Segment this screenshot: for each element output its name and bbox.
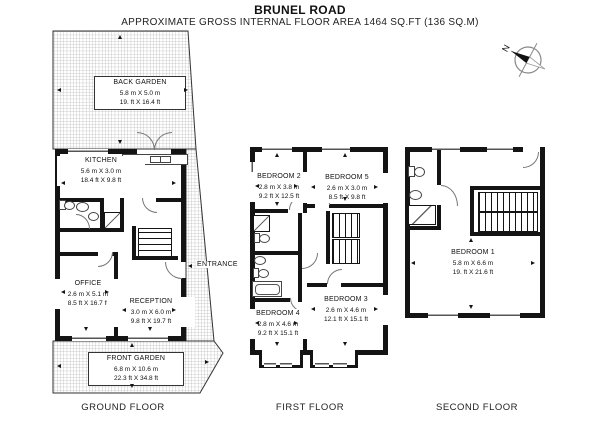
- measure-arrow-left-icon: [411, 261, 415, 265]
- room-name: BEDROOM 3: [303, 295, 389, 306]
- room-dims-imperial: 8.5 ft X 9.8 ft: [304, 193, 390, 203]
- measure-arrow-left-icon: [311, 185, 315, 189]
- room-name: BEDROOM 5: [304, 173, 390, 184]
- wall: [437, 150, 441, 185]
- wall: [460, 147, 487, 152]
- toilet-icon: [64, 201, 75, 210]
- compass-rose-icon: N: [500, 30, 554, 86]
- room-dims-imperial: 19. ft X 21.6 ft: [430, 268, 516, 278]
- stairs: [138, 228, 172, 258]
- compass: N: [500, 30, 556, 86]
- wall: [252, 251, 298, 255]
- compass-north-label: N: [500, 43, 512, 53]
- room-dims-imperial: 19. ft X 16.4 ft: [98, 98, 182, 108]
- sink-icon: [160, 156, 171, 163]
- measure-arrow-up-icon: [275, 153, 279, 157]
- measure-arrow-down-icon: [469, 305, 473, 309]
- measure-arrow-down-icon: [343, 342, 347, 346]
- measure-arrow-left-icon: [57, 88, 61, 92]
- toilet-icon: [259, 234, 270, 243]
- sink-icon: [254, 256, 266, 265]
- wall: [341, 283, 383, 287]
- room-name: OFFICE: [45, 279, 131, 290]
- measure-arrow-down-icon: [84, 327, 88, 331]
- wall: [181, 149, 186, 262]
- window: [72, 336, 106, 341]
- measure-arrow-left-icon: [61, 181, 65, 185]
- wall: [474, 232, 540, 236]
- room-dims-imperial: 9.2 ft X 15.1 ft: [235, 329, 321, 339]
- sink-icon: [76, 202, 89, 212]
- wall: [329, 204, 383, 208]
- toilet-icon: [258, 269, 269, 278]
- measure-arrow-left-icon: [311, 307, 315, 311]
- measure-arrow-down-icon: [118, 140, 122, 144]
- stairs: [478, 192, 538, 212]
- front-garden-label: FRONT GARDEN 6.8 m X 10.6 m 22.3 ft X 34…: [88, 352, 184, 386]
- room-dims-metric: 5.8 m X 5.0 m: [98, 89, 182, 99]
- measure-arrow-right-icon: [374, 307, 378, 311]
- wall: [470, 186, 474, 236]
- sink-icon: [88, 212, 99, 221]
- measure-arrow-right-icon: [294, 321, 298, 325]
- window: [315, 361, 329, 367]
- back-garden-label: BACK GARDEN 5.8 m X 5.0 m 19. ft X 16.4 …: [94, 76, 186, 110]
- wall: [168, 336, 186, 341]
- room-dims-imperial: 12.1 ft X 15.1 ft: [303, 315, 389, 325]
- wall: [540, 147, 545, 318]
- wall: [58, 252, 98, 256]
- measure-arrow-down-icon: [343, 197, 347, 201]
- wall: [250, 147, 255, 162]
- wall: [408, 226, 441, 230]
- window: [68, 149, 108, 154]
- stairs: [478, 212, 538, 232]
- wall: [55, 336, 72, 341]
- room-dims-imperial: 18.4 ft X 9.8 ft: [58, 176, 144, 186]
- bedroom-1-label: BEDROOM 1 5.8 m X 6.6 m 19. ft X 21.6 ft: [429, 248, 517, 278]
- shower-icon: [104, 212, 121, 229]
- measure-arrow-down-icon: [275, 202, 279, 206]
- measure-arrow-right-icon: [531, 261, 535, 265]
- wall: [132, 226, 136, 260]
- measure-arrow-right-icon: [184, 88, 188, 92]
- room-name: RECEPTION: [108, 297, 194, 308]
- wall: [106, 336, 128, 341]
- wall: [307, 283, 327, 287]
- ground-floor-caption: GROUND FLOOR: [81, 402, 165, 413]
- reception-label: RECEPTION 3.0 m X 6.0 m 9.8 ft X 19.7 ft: [107, 297, 195, 327]
- measure-arrow-left-icon: [122, 308, 126, 312]
- window: [262, 147, 292, 152]
- kitchen-label: KITCHEN 5.6 m X 3.0 m 18.4 ft X 9.8 ft: [57, 156, 145, 186]
- wall: [474, 186, 540, 190]
- window: [264, 361, 276, 367]
- floorplan-page: BRUNEL ROAD APPROXIMATE GROSS INTERNAL F…: [0, 0, 600, 423]
- measure-arrow-left-icon: [255, 184, 259, 188]
- room-dims-imperial: 9.8 ft X 19.7 ft: [108, 317, 194, 327]
- stairs: [332, 213, 360, 238]
- stairs: [332, 239, 360, 264]
- window: [487, 147, 513, 152]
- wall: [513, 147, 523, 152]
- wall: [307, 204, 315, 208]
- measure-arrow-down-icon: [148, 327, 152, 331]
- wall: [252, 209, 288, 213]
- bathtub-inner: [255, 284, 280, 295]
- measure-arrow-right-icon: [205, 360, 209, 364]
- room-dims-metric: 3.0 m X 6.0 m: [108, 308, 194, 318]
- shower-icon: [253, 215, 270, 232]
- room-dims-imperial: 22.3 ft X 34.8 ft: [92, 374, 180, 384]
- room-dims-metric: 5.6 m X 3.0 m: [58, 167, 144, 177]
- room-dims-metric: 5.8 m X 6.6 m: [430, 259, 516, 269]
- window: [333, 361, 347, 367]
- room-name: BACK GARDEN: [98, 78, 182, 89]
- measure-arrow-up-icon: [469, 238, 473, 242]
- wall: [458, 313, 490, 318]
- window: [428, 313, 458, 318]
- window: [322, 147, 350, 152]
- bathtub-icon: [252, 281, 282, 297]
- wall: [520, 313, 545, 318]
- room-name: KITCHEN: [58, 156, 144, 167]
- window: [490, 313, 520, 318]
- measure-arrow-up-icon: [130, 343, 134, 347]
- measure-arrow-left-icon: [57, 364, 61, 368]
- wall: [292, 147, 322, 152]
- measure-arrow-down-icon: [130, 384, 134, 388]
- measure-arrow-left-icon: [61, 290, 65, 294]
- measure-arrow-up-icon: [118, 35, 122, 39]
- measure-arrow-left-icon: [188, 264, 192, 268]
- measure-arrow-right-icon: [172, 308, 176, 312]
- room-name: BEDROOM 1: [430, 248, 516, 259]
- shower-icon: [408, 205, 436, 225]
- measure-arrow-left-icon: [255, 321, 259, 325]
- wall: [252, 298, 290, 302]
- measure-arrow-right-icon: [172, 181, 176, 185]
- window: [128, 336, 168, 341]
- entrance-label: ENTRANCE: [196, 261, 239, 268]
- wall: [405, 313, 428, 318]
- measure-arrow-right-icon: [294, 184, 298, 188]
- toilet-icon: [414, 167, 425, 177]
- first-floor-caption: FIRST FLOOR: [276, 402, 344, 413]
- wall: [326, 211, 330, 264]
- sink-icon: [409, 190, 422, 200]
- measure-arrow-right-icon: [374, 185, 378, 189]
- measure-arrow-right-icon: [105, 290, 109, 294]
- room-name: FRONT GARDEN: [92, 354, 180, 365]
- window: [280, 361, 292, 367]
- measure-arrow-up-icon: [343, 153, 347, 157]
- second-floor-caption: SECOND FLOOR: [436, 402, 518, 413]
- measure-arrow-down-icon: [275, 342, 279, 346]
- wall: [156, 198, 186, 202]
- wall: [250, 350, 259, 355]
- room-dims-metric: 6.8 m X 10.6 m: [92, 365, 180, 375]
